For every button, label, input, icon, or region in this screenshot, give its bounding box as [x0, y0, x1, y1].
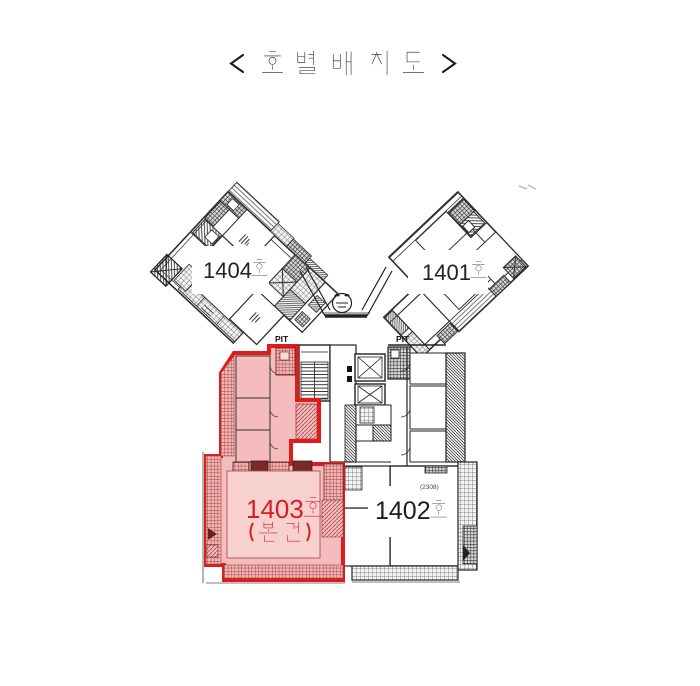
- svg-text:1403: 1403: [246, 494, 304, 524]
- svg-text:1402: 1402: [375, 497, 431, 525]
- svg-text:(2308): (2308): [420, 484, 439, 491]
- svg-text:PIT: PIT: [275, 334, 289, 344]
- svg-text:1401: 1401: [422, 260, 471, 285]
- svg-text:1404: 1404: [203, 258, 252, 283]
- svg-text:PIT: PIT: [396, 334, 410, 344]
